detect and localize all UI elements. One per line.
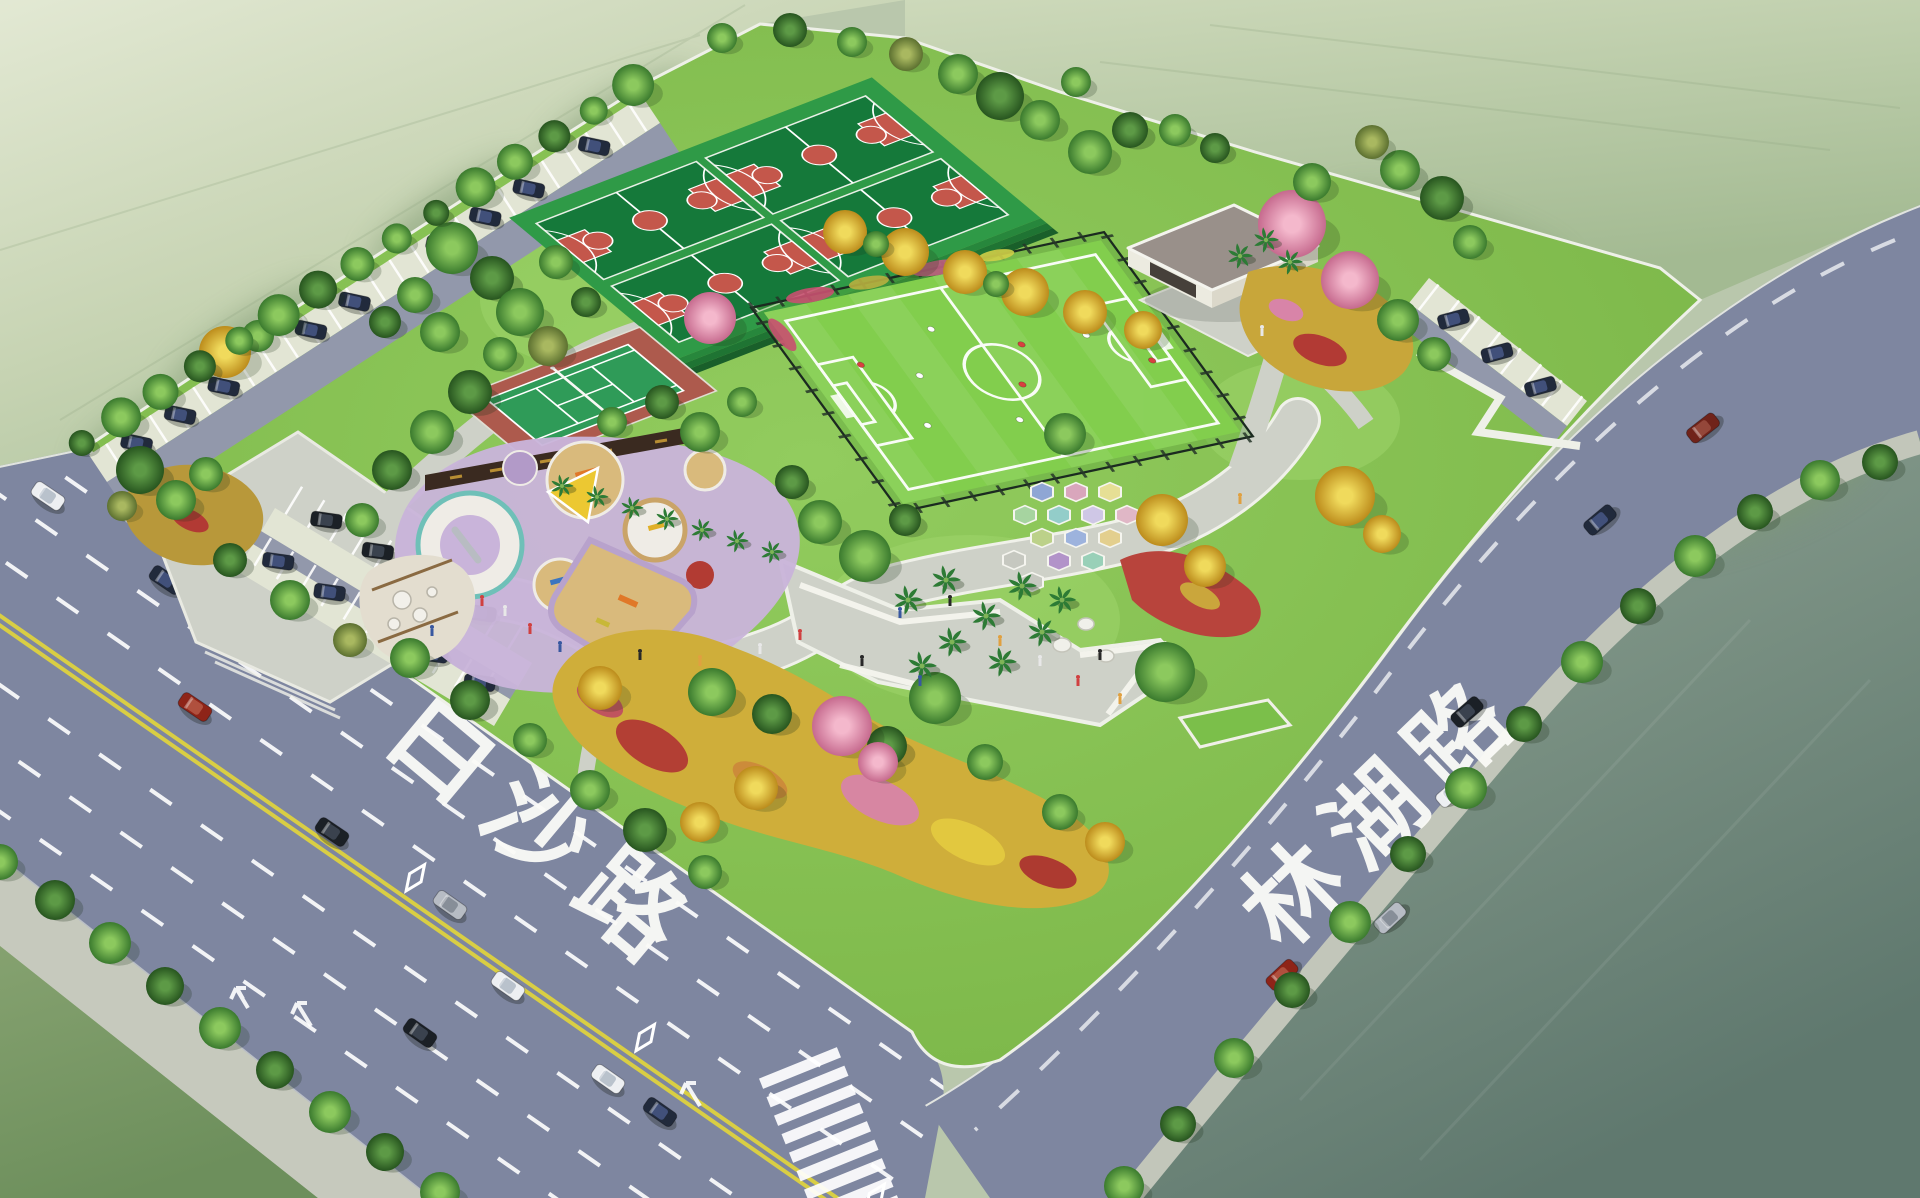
hex-tile: [1031, 483, 1053, 502]
person: [758, 643, 762, 654]
hex-tile: [1048, 506, 1070, 525]
hex-tile: [1048, 552, 1070, 571]
person: [998, 635, 1002, 646]
person: [918, 675, 922, 686]
person: [1076, 675, 1080, 686]
hex-tile: [1014, 506, 1036, 525]
person: [860, 655, 864, 666]
hex-tile: [1031, 529, 1053, 548]
hex-tile: [1099, 483, 1121, 502]
hex-tile: [1099, 529, 1121, 548]
hex-tile: [1065, 483, 1087, 502]
person: [698, 655, 702, 666]
person: [1260, 325, 1264, 336]
person: [528, 623, 532, 634]
person: [480, 595, 484, 606]
hex-tile: [1082, 506, 1104, 525]
scene-svg: 白沙路 林湖路: [0, 0, 1920, 1198]
person: [558, 641, 562, 652]
hex-tile: [1116, 506, 1138, 525]
person: [798, 629, 802, 640]
person: [1038, 655, 1042, 666]
hex-tile: [1065, 529, 1087, 548]
park-aerial-rendering: 白沙路 林湖路: [0, 0, 1920, 1198]
person: [638, 649, 642, 660]
person: [1118, 693, 1122, 704]
hex-tile: [1082, 552, 1104, 571]
person: [898, 607, 902, 618]
person: [1098, 649, 1102, 660]
person: [430, 625, 434, 636]
person: [1238, 493, 1242, 504]
person: [503, 605, 507, 616]
person: [948, 595, 952, 606]
